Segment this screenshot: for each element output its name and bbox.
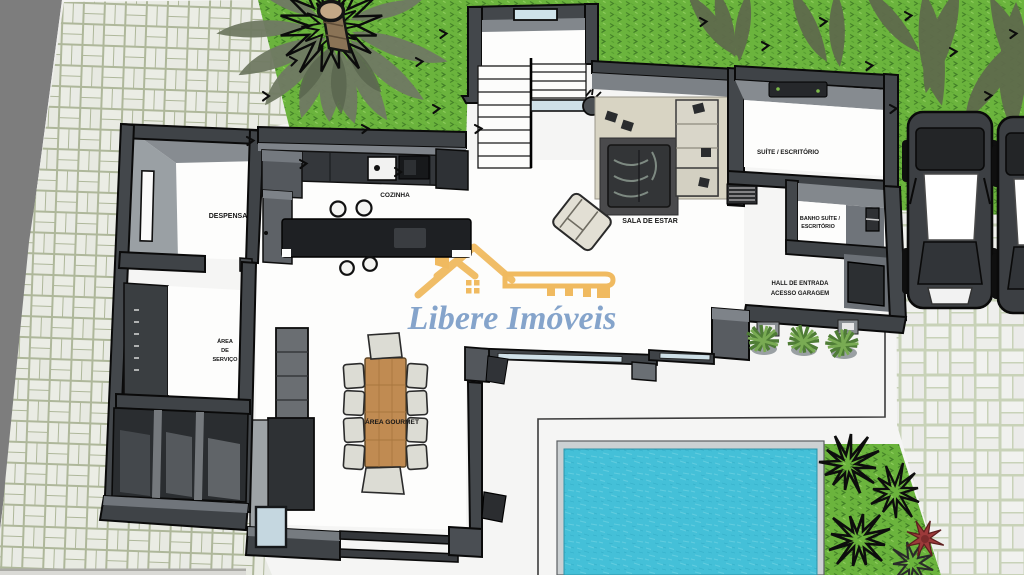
svg-text:ESCRITÓRIO: ESCRITÓRIO: [801, 222, 835, 230]
svg-text:DESPENSA: DESPENSA: [209, 213, 248, 220]
svg-text:HALL DE ENTRADA: HALL DE ENTRADA: [772, 281, 830, 287]
svg-text:DE: DE: [221, 348, 229, 354]
svg-text:ÁREA GOURMET: ÁREA GOURMET: [365, 417, 419, 426]
svg-text:SALA DE ESTAR: SALA DE ESTAR: [622, 218, 678, 225]
svg-text:SERVIÇO: SERVIÇO: [212, 357, 238, 363]
svg-text:ACESSO GARAGEM: ACESSO GARAGEM: [771, 291, 829, 297]
svg-text:Libere Imóveis: Libere Imóveis: [407, 300, 617, 337]
svg-text:COZINHA: COZINHA: [380, 192, 410, 199]
svg-text:BANHO SUÍTE /: BANHO SUÍTE /: [800, 214, 841, 222]
svg-text:SUÍTE / ESCRITÓRIO: SUÍTE / ESCRITÓRIO: [757, 148, 819, 156]
svg-text:ÁREA: ÁREA: [217, 338, 233, 345]
